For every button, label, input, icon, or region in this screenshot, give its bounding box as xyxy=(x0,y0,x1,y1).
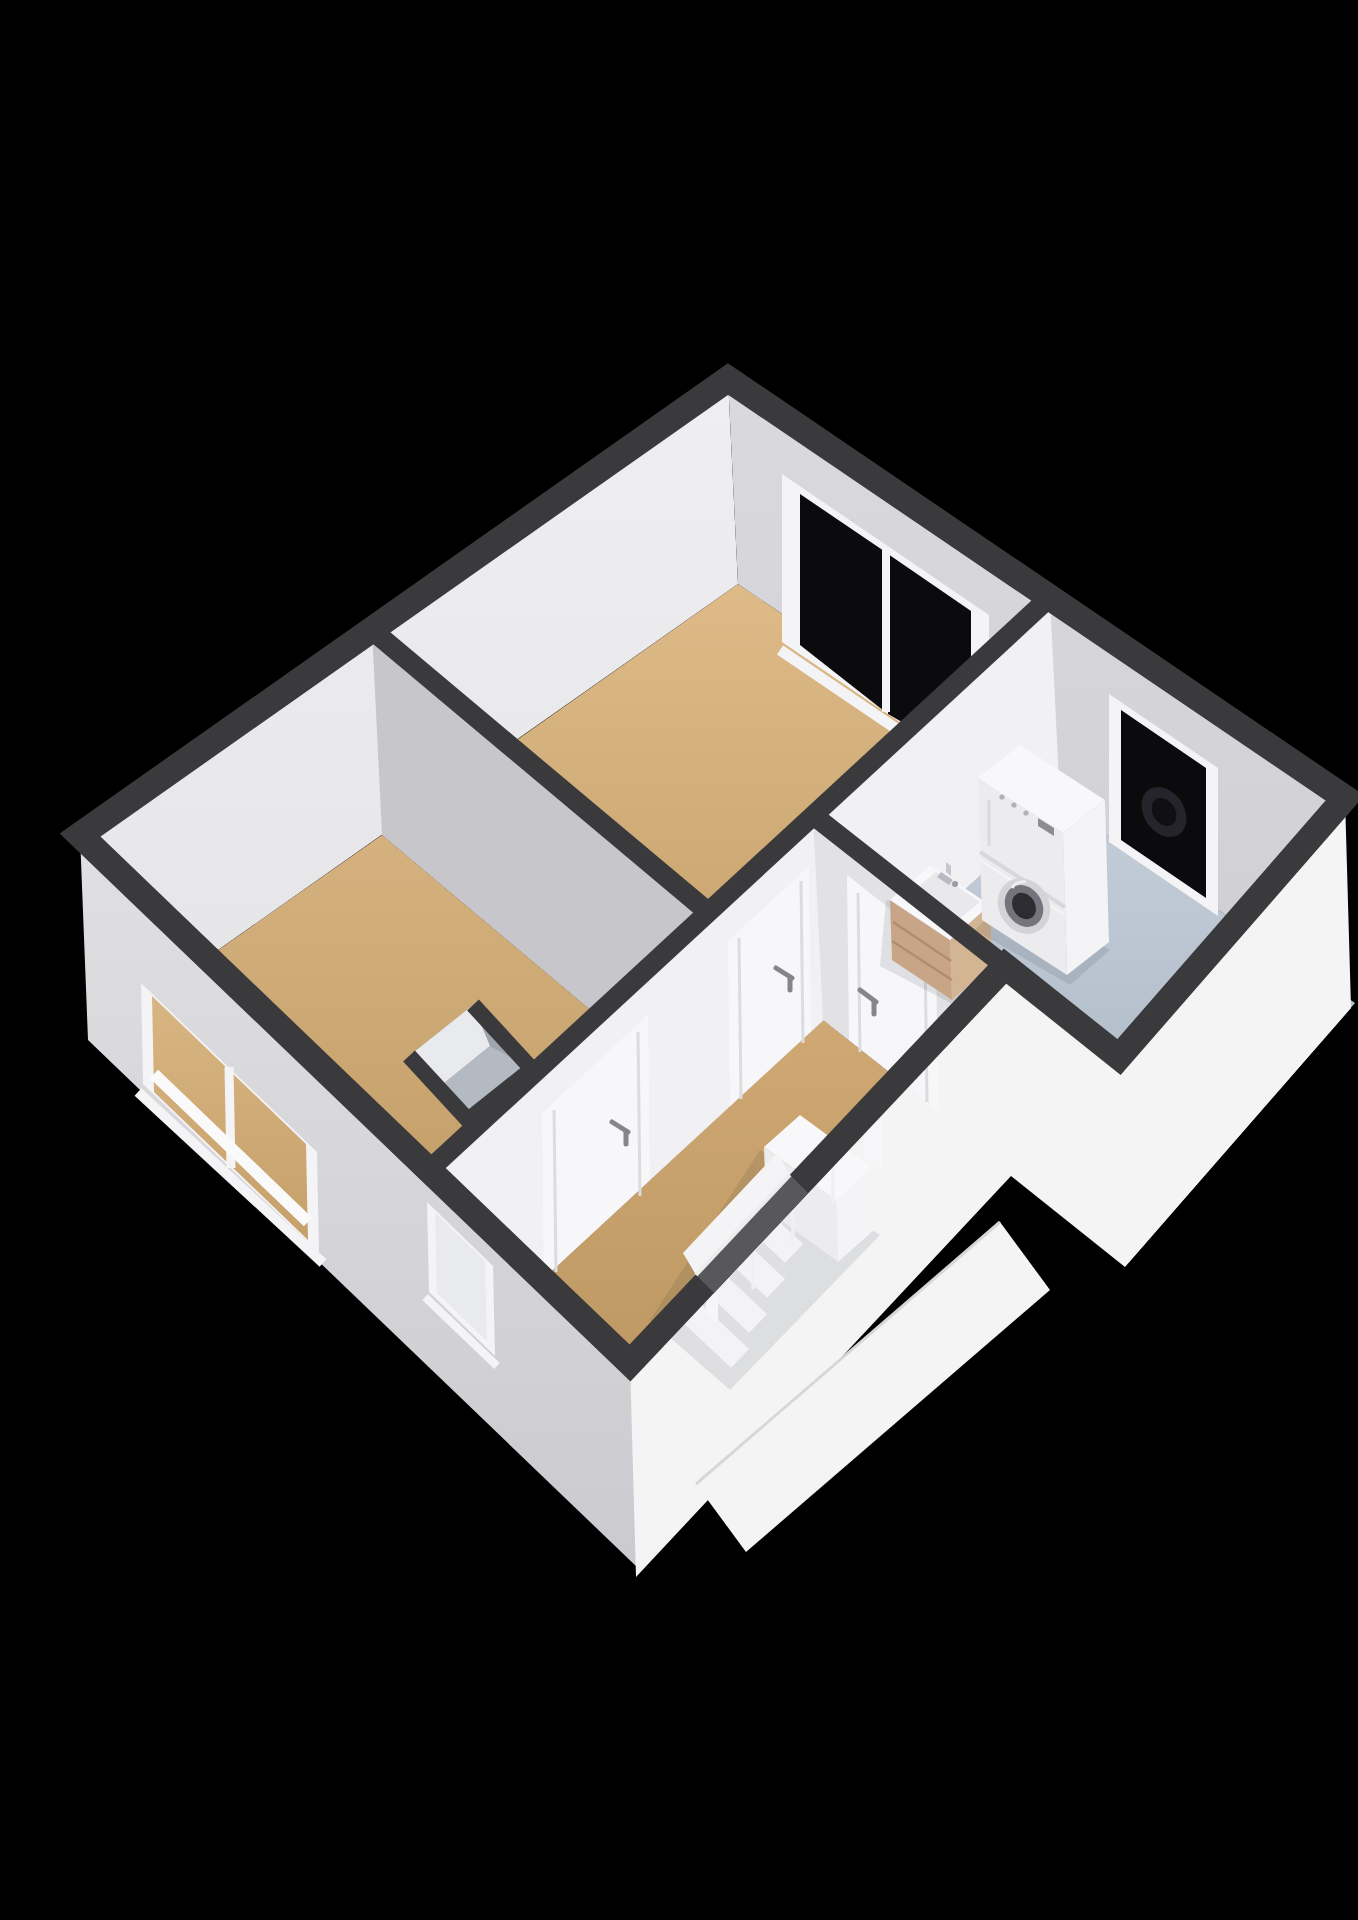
floorplan-3d-render xyxy=(0,0,1358,1920)
floorplan-3d-viewport[interactable] xyxy=(0,0,1358,1920)
